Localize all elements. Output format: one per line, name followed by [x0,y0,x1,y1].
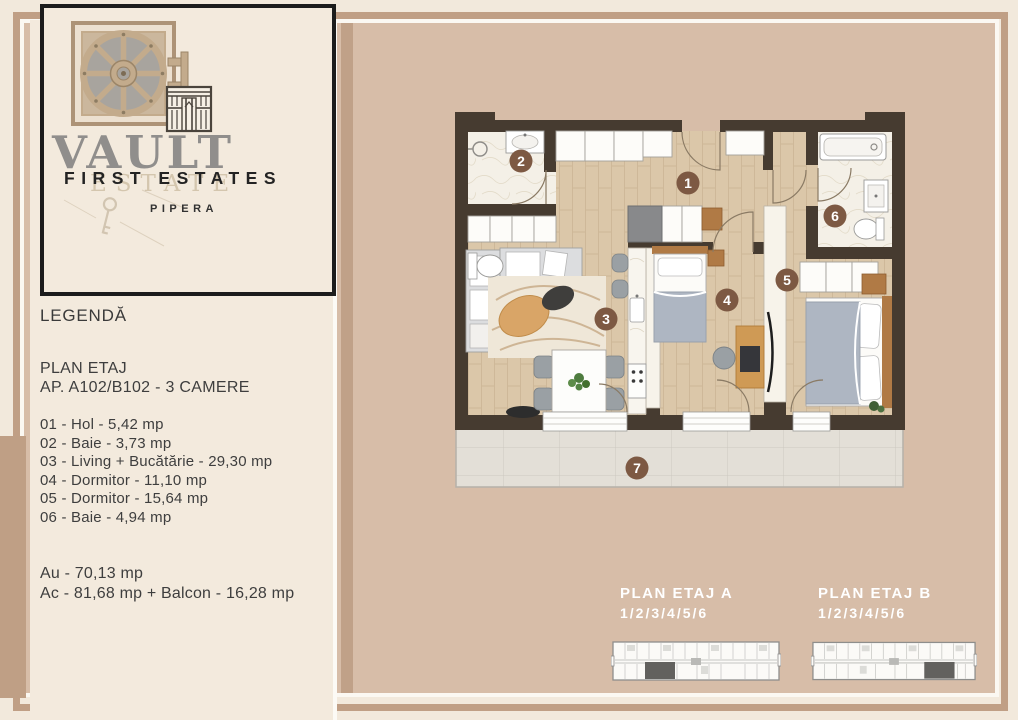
apartment-line: AP. A102/B102 - 3 CAMERE [40,379,250,397]
svg-text:2: 2 [517,153,525,169]
legend-panel-shadow [341,23,353,693]
useful-area-line: Au - 70,13 mp [40,564,294,584]
room-list-item: 02 - Baie - 3,73 mp [40,435,272,454]
legend-title: LEGENDĂ [40,306,127,326]
room-number-7: 7 [626,457,649,480]
plan-heading: PLAN ETAJ [40,360,127,378]
room-number-6: 6 [824,205,847,228]
watermark-lines [64,190,184,246]
plan-b-title: PLAN ETAJ B [818,585,932,602]
stair-core [889,658,899,665]
plan-a-title: PLAN ETAJ A [620,585,733,602]
apartment-floorplan: 1 2 3 4 5 6 7 [448,104,912,496]
hall-cabinet [702,208,722,230]
balcony [456,430,903,487]
room-list-item: 06 - Baie - 4,94 mp [40,509,272,528]
stair-core [691,658,701,665]
highlighted-unit-b [924,662,954,679]
mini-floorplan-a [611,635,781,687]
area-totals: Au - 70,13 mp Ac - 81,68 mp + Balcon - 1… [40,564,294,603]
vault-logo: ESTATE VAULT FIRST ESTATES PIPERA [44,8,332,292]
highlighted-unit-a [645,662,675,679]
svg-text:7: 7 [633,460,641,476]
building-icon [167,87,211,131]
desk-chair [713,347,735,369]
built-area-line: Ac - 81,68 mp + Balcon - 16,28 mp [40,584,294,604]
room-list-item: 04 - Dormitor - 11,10 mp [40,472,272,491]
logo-subtitle-text: FIRST ESTATES [64,168,282,188]
plan-a-levels: 1/2/3/4/5/6 [620,605,733,621]
room-number-3: 3 [595,308,618,331]
room-number-5: 5 [776,269,799,292]
room-number-1: 1 [677,172,700,195]
brochure-page: LEGENDĂ PLAN ETAJ AP. A102/B102 - 3 CAME… [0,0,1018,720]
logo-location-text: PIPERA [150,203,218,215]
room-list: 01 - Hol - 5,42 mp 02 - Baie - 3,73 mp 0… [40,416,272,528]
plan-a-label: PLAN ETAJ A 1/2/3/4/5/6 [620,585,733,621]
room-number-2: 2 [510,150,533,173]
left-margin-strip [0,436,26,698]
room-list-item: 05 - Dormitor - 15,64 mp [40,490,272,509]
plan-b-label: PLAN ETAJ B 1/2/3/4/5/6 [818,585,932,621]
room-list-item: 03 - Living + Bucătărie - 29,30 mp [40,453,272,472]
key-watermark-icon [97,197,117,235]
plan-b-levels: 1/2/3/4/5/6 [818,605,932,621]
svg-text:6: 6 [831,208,839,224]
svg-text:1: 1 [684,175,692,191]
mini-floorplan-b [811,635,977,687]
room-list-item: 01 - Hol - 5,42 mp [40,416,272,435]
svg-text:5: 5 [783,272,791,288]
logo-box: ESTATE VAULT FIRST ESTATES PIPERA [40,4,336,296]
svg-text:4: 4 [723,292,731,308]
room-number-4: 4 [716,289,739,312]
laptop-icon [740,346,760,372]
fridge [628,206,662,242]
svg-text:3: 3 [602,311,610,327]
